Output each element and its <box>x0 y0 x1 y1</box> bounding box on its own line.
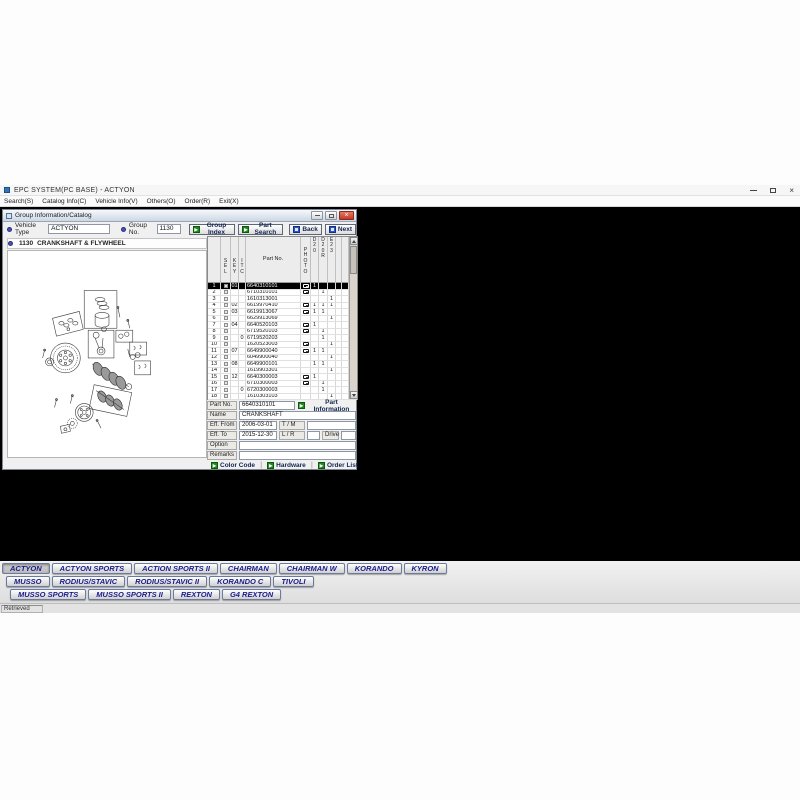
cell-sel <box>221 283 231 289</box>
photo-icon[interactable] <box>303 329 309 333</box>
cell-part: 1619903301 <box>246 368 301 374</box>
cell-photo <box>301 329 311 335</box>
photo-icon[interactable] <box>303 342 309 346</box>
cell-part: 6640300003 <box>246 374 301 380</box>
cell-sel <box>221 374 231 380</box>
menu-exit-x[interactable]: Exit(X) <box>219 198 239 205</box>
eff-to-label: Eff. To <box>207 431 237 440</box>
hardware-button[interactable]: ▶ Hardware <box>267 462 306 469</box>
cell-itc <box>239 283 246 289</box>
tm-value[interactable] <box>307 421 356 430</box>
cell-d20: 1 <box>311 309 319 315</box>
part-no-value[interactable]: 6640310101 <box>239 401 295 410</box>
cell-x2 <box>342 368 349 374</box>
cell-d20 <box>311 290 319 296</box>
cell-part: 6049900040 <box>246 355 301 361</box>
app-titlebar: EPC SYSTEM(PC BASE) - ACTYON <box>0 185 800 196</box>
table-scrollbar[interactable] <box>349 237 357 399</box>
photo-icon[interactable] <box>303 323 309 327</box>
cell-no: 5 <box>208 309 221 315</box>
cell-d20r <box>319 374 328 380</box>
cell-photo <box>301 374 311 380</box>
cell-key: 04 <box>231 322 239 328</box>
cell-key: 03 <box>231 309 239 315</box>
cell-no: 16 <box>208 381 221 387</box>
cell-d20r <box>319 283 328 289</box>
cell-sel <box>221 381 231 387</box>
cell-itc <box>239 309 246 315</box>
cell-no: 15 <box>208 374 221 380</box>
menu-vehicle-info-v[interactable]: Vehicle Info(V) <box>95 198 137 205</box>
cell-itc <box>239 348 246 354</box>
cell-no: 18 <box>208 394 221 400</box>
app-title: EPC SYSTEM(PC BASE) - ACTYON <box>14 187 135 194</box>
cell-d20 <box>311 329 319 335</box>
window-minimize-button[interactable] <box>311 211 323 220</box>
cell-d20: 1 <box>311 322 319 328</box>
cell-key: 07 <box>231 348 239 354</box>
cell-part: 6619970410 <box>246 303 301 309</box>
cell-itc <box>239 381 246 387</box>
eff-from-value[interactable]: 2006-03-01 <box>239 421 277 430</box>
cell-no: 9 <box>208 335 221 341</box>
vehicle-type-label: Vehicle Type <box>15 222 45 236</box>
green-arrow-icon: ▶ <box>298 402 305 409</box>
cell-key <box>231 296 239 302</box>
cell-photo <box>301 387 311 393</box>
photo-icon[interactable] <box>303 375 309 379</box>
model-button-action-sports-ii[interactable]: ACTION SPORTS II <box>134 563 218 574</box>
cell-e23 <box>328 309 336 315</box>
cell-itc: 0 <box>239 335 246 341</box>
catalog-window-titlebar[interactable]: Group Information/Catalog × <box>3 210 356 222</box>
parts-diagram-panel[interactable] <box>7 250 207 458</box>
parts-table: SELKEYITCPart No.PHOTOD20D20RE23 1016640… <box>207 236 358 400</box>
cell-photo <box>301 368 311 374</box>
vehicle-type-bullet-icon <box>7 227 12 232</box>
cell-x2 <box>342 309 349 315</box>
tm-label: T / M <box>279 421 305 430</box>
cell-d20 <box>311 335 319 341</box>
remarks-label: Remarks <box>207 451 237 460</box>
minimize-icon <box>315 215 320 216</box>
cell-e23: 1 <box>328 303 336 309</box>
cell-e23 <box>328 387 336 393</box>
cell-itc <box>239 316 246 322</box>
model-button-rexton[interactable]: REXTON <box>173 589 220 600</box>
cell-no: 17 <box>208 387 221 393</box>
model-button-rodius-stavic-ii[interactable]: RODIUS/STAVIC II <box>127 576 207 587</box>
cell-d20r: 1 <box>319 361 328 367</box>
drive-label: Drive <box>322 431 339 440</box>
cell-e23 <box>328 348 336 354</box>
cell-x2 <box>342 361 349 367</box>
photo-icon[interactable] <box>303 290 309 294</box>
cell-d20r: 1 <box>319 387 328 393</box>
menu-catalog-info-c[interactable]: Catalog Info(C) <box>42 198 86 205</box>
cell-key <box>231 316 239 322</box>
cell-no: 4 <box>208 303 221 309</box>
cell-photo <box>301 348 311 354</box>
cell-key <box>231 368 239 374</box>
cell-sel <box>221 303 231 309</box>
cell-d20r <box>319 342 328 348</box>
model-button-musso[interactable]: MUSSO <box>6 576 50 587</box>
cell-d20 <box>311 387 319 393</box>
model-button-musso-sports-ii[interactable]: MUSSO SPORTS II <box>88 589 171 600</box>
cell-e23 <box>328 283 336 289</box>
vehicle-type-field[interactable]: ACTYON <box>48 224 110 234</box>
cell-key <box>231 290 239 296</box>
menu-search-s[interactable]: Search(S) <box>4 198 33 205</box>
cell-no: 6 <box>208 316 221 322</box>
cell-sel <box>221 290 231 296</box>
cell-sel <box>221 361 231 367</box>
cell-d20: 1 <box>311 303 319 309</box>
row-select-icon[interactable] <box>224 349 228 353</box>
cell-part: 6649900040 <box>246 348 301 354</box>
row-select-icon[interactable] <box>224 303 228 307</box>
catalog-window-icon <box>6 213 12 219</box>
cell-photo <box>301 322 311 328</box>
photo-icon[interactable] <box>303 284 309 288</box>
cell-part: 1610303103 <box>246 394 301 400</box>
cell-key: 08 <box>231 361 239 367</box>
menu-order-r[interactable]: Order(R) <box>185 198 211 205</box>
cell-x2 <box>342 329 349 335</box>
cell-d20 <box>311 296 319 302</box>
model-button-korando-c[interactable]: KORANDO C <box>209 576 271 587</box>
section-bullet-icon <box>8 241 13 246</box>
option-value[interactable] <box>239 441 356 450</box>
cell-key <box>231 394 239 400</box>
cell-e23 <box>328 374 336 380</box>
model-button-rodius-stavic[interactable]: RODIUS/STAVIC <box>52 576 126 587</box>
color-code-label: Color Code <box>220 462 255 469</box>
cell-key <box>231 381 239 387</box>
section-header: 1130 CRANKSHAFT & FLYWHEEL <box>7 238 207 249</box>
maximize-icon <box>329 214 334 218</box>
cell-d20r <box>319 322 328 328</box>
cell-part: 6719520103 <box>246 329 301 335</box>
model-row-1: MUSSORODIUS/STAVICRODIUS/STAVIC IIKORAND… <box>6 576 314 587</box>
back-icon <box>293 226 300 233</box>
model-button-tivoli[interactable]: TIVOLI <box>273 576 313 587</box>
detail-buttons: ▶ Color Code | ▶ Hardware | ▶ Order List <box>211 460 358 470</box>
part-search-button[interactable]: ▶ Part Search <box>238 224 283 235</box>
photo-icon[interactable] <box>303 349 309 353</box>
cell-sel <box>221 355 231 361</box>
model-button-actyon[interactable]: ACTYON <box>2 563 50 574</box>
option-label: Option <box>207 441 237 450</box>
color-code-button[interactable]: ▶ Color Code <box>211 462 255 469</box>
model-row-0: ACTYONACTYON SPORTSACTION SPORTS IICHAIR… <box>2 563 447 574</box>
photo-icon[interactable] <box>303 303 309 307</box>
green-arrow-icon: ▶ <box>318 462 325 469</box>
back-label: Back <box>302 226 318 233</box>
cell-photo <box>301 361 311 367</box>
group-no-bullet-icon <box>121 227 126 232</box>
row-select-icon[interactable] <box>224 323 228 327</box>
model-band: ACTYONACTYON SPORTSACTION SPORTS IICHAIR… <box>0 561 800 603</box>
cell-sel <box>221 296 231 302</box>
row-select-icon[interactable] <box>224 310 228 314</box>
column-header-no <box>208 237 221 283</box>
cell-e23 <box>328 322 336 328</box>
cell-d20r: 1 <box>319 303 328 309</box>
group-no-field[interactable]: 1130 <box>157 224 181 234</box>
column-header-itc: ITC <box>239 237 246 283</box>
cell-itc <box>239 329 246 335</box>
column-header-d20r: D20R <box>319 237 328 283</box>
cell-d20r <box>319 355 328 361</box>
cell-photo <box>301 355 311 361</box>
row-select-icon[interactable] <box>224 375 228 379</box>
screen: EPC SYSTEM(PC BASE) - ACTYON × Search(S)… <box>0 0 800 800</box>
app-icon <box>4 187 10 193</box>
column-header-e23: E23 <box>328 237 336 283</box>
photo-icon[interactable] <box>303 310 309 314</box>
next-icon <box>329 226 336 233</box>
row-select-icon[interactable] <box>224 394 228 398</box>
menu-others-o[interactable]: Others(O) <box>147 198 176 205</box>
status-bar: Retrieved <box>0 603 800 613</box>
cell-sel <box>221 387 231 393</box>
cell-key <box>231 329 239 335</box>
model-button-chairman[interactable]: CHAIRMAN <box>220 563 277 574</box>
cell-d20: 1 <box>311 348 319 354</box>
cell-photo <box>301 290 311 296</box>
next-button[interactable]: Next <box>325 224 356 235</box>
order-list-label: Order List <box>327 462 358 469</box>
column-header-sel: SEL <box>221 237 231 283</box>
row-select-icon[interactable] <box>224 316 228 320</box>
cell-sel <box>221 322 231 328</box>
back-button[interactable]: Back <box>289 224 322 235</box>
model-button-g4-rexton[interactable]: G4 REXTON <box>222 589 281 600</box>
divider: | <box>260 462 262 469</box>
cell-e23: 1 <box>328 368 336 374</box>
cell-sel <box>221 309 231 315</box>
row-select-icon[interactable] <box>224 362 228 366</box>
cell-x2 <box>342 316 349 322</box>
cell-d20 <box>311 355 319 361</box>
cell-d20r: 1 <box>319 335 328 341</box>
row-select-icon[interactable] <box>224 336 228 340</box>
row-select-icon[interactable] <box>224 368 228 372</box>
green-arrow-icon: ▶ <box>267 462 274 469</box>
column-header-photo: PHOTO <box>301 237 311 283</box>
cell-x2 <box>342 335 349 341</box>
cell-sel <box>221 342 231 348</box>
cell-itc <box>239 296 246 302</box>
cell-x2 <box>342 348 349 354</box>
cell-d20r <box>319 316 328 322</box>
catalog-toolbar: Vehicle Type ACTYON Group No. 1130 ▶ Gro… <box>3 222 356 236</box>
cell-e23 <box>328 335 336 341</box>
group-index-label: Group Index <box>202 222 232 236</box>
cell-d20 <box>311 368 319 374</box>
name-value[interactable]: CRANKSHAFT <box>239 411 356 420</box>
group-no-label: Group No. <box>129 222 154 236</box>
name-label: Name <box>207 411 237 420</box>
cell-part: 6720300003 <box>246 387 301 393</box>
cell-photo <box>301 309 311 315</box>
cell-x2 <box>342 381 349 387</box>
cell-itc <box>239 394 246 400</box>
cell-itc <box>239 342 246 348</box>
cell-key: 12 <box>231 374 239 380</box>
cell-no: 3 <box>208 296 221 302</box>
cell-key: 02 <box>231 303 239 309</box>
lr-value[interactable] <box>307 431 320 440</box>
model-button-korando[interactable]: KORANDO <box>347 563 402 574</box>
cell-e23: 1 <box>328 316 336 322</box>
cell-e23 <box>328 381 336 387</box>
restore-icon[interactable] <box>770 188 776 193</box>
menu-bar: Search(S)Catalog Info(C)Vehicle Info(V)O… <box>0 196 800 207</box>
order-list-button[interactable]: ▶ Order List <box>318 462 358 469</box>
cell-x2 <box>342 387 349 393</box>
photo-icon[interactable] <box>303 381 309 385</box>
row-select-icon[interactable] <box>224 297 228 301</box>
cell-key <box>231 387 239 393</box>
column-header-d20: D20 <box>311 237 319 283</box>
cell-itc <box>239 355 246 361</box>
part-information-button[interactable]: ▶ Part Information <box>298 401 356 410</box>
cell-x2 <box>342 355 349 361</box>
cell-part: 1610313001 <box>246 296 301 302</box>
cell-e23 <box>328 290 336 296</box>
eff-to-value[interactable]: 2015-12-30 <box>239 431 277 440</box>
cell-photo <box>301 335 311 341</box>
model-button-actyon-sports[interactable]: ACTYON SPORTS <box>52 563 132 574</box>
drive-value[interactable] <box>341 431 356 440</box>
part-no-label: Part No. <box>207 401 237 410</box>
model-button-musso-sports[interactable]: MUSSO SPORTS <box>10 589 86 600</box>
cell-x2 <box>342 290 349 296</box>
cell-sel <box>221 329 231 335</box>
lr-label: L / R <box>279 431 305 440</box>
row-select-icon[interactable] <box>224 388 228 392</box>
eff-from-label: Eff. From <box>207 421 237 430</box>
cell-photo <box>301 381 311 387</box>
cell-d20r <box>319 368 328 374</box>
cell-no: 10 <box>208 342 221 348</box>
cell-part: 6710300003 <box>246 381 301 387</box>
cell-part: 6719520203 <box>246 335 301 341</box>
catalog-window: Group Information/Catalog × Vehicle Type… <box>2 209 357 470</box>
cell-no: 2 <box>208 290 221 296</box>
window-close-button[interactable]: × <box>339 211 354 220</box>
row-select-icon[interactable] <box>224 342 228 346</box>
cell-photo <box>301 342 311 348</box>
cell-no: 14 <box>208 368 221 374</box>
parts-table-body: 1016640310101126710310101131610313001140… <box>208 283 357 400</box>
cell-x2 <box>342 342 349 348</box>
cell-part: 6640310101 <box>246 283 301 289</box>
app-window-controls: × <box>750 185 794 196</box>
cell-d20 <box>311 381 319 387</box>
cell-key <box>231 335 239 341</box>
parts-table-header: SELKEYITCPart No.PHOTOD20D20RE23 <box>208 237 357 283</box>
cell-e23 <box>328 329 336 335</box>
cell-x2 <box>342 296 349 302</box>
scroll-up-icon[interactable] <box>350 237 358 245</box>
cell-x2 <box>342 303 349 309</box>
row-select-icon[interactable] <box>224 381 228 385</box>
hardware-label: Hardware <box>276 462 306 469</box>
cell-e23 <box>328 361 336 367</box>
cell-photo <box>301 283 311 289</box>
cell-no: 13 <box>208 361 221 367</box>
cell-d20 <box>311 316 319 322</box>
column-header-part: Part No. <box>246 237 301 283</box>
next-label: Next <box>338 226 352 233</box>
green-arrow-icon: ▶ <box>242 226 249 233</box>
remarks-value[interactable] <box>239 451 356 460</box>
parts-diagram-svg <box>8 251 206 457</box>
cell-sel <box>221 335 231 341</box>
cell-itc <box>239 374 246 380</box>
cell-part: 6649900101 <box>246 361 301 367</box>
cell-itc <box>239 368 246 374</box>
model-button-kyron[interactable]: KYRON <box>404 563 447 574</box>
cell-no: 11 <box>208 348 221 354</box>
cell-e23: 1 <box>328 342 336 348</box>
cell-x2 <box>342 283 349 289</box>
cell-part: 6640520103 <box>246 322 301 328</box>
divider: | <box>311 462 313 469</box>
cell-itc: 0 <box>239 387 246 393</box>
cell-sel <box>221 348 231 354</box>
cell-itc <box>239 303 246 309</box>
cell-no: 8 <box>208 329 221 335</box>
scrollbar-thumb[interactable] <box>350 246 357 274</box>
status-text: Retrieved <box>1 605 43 613</box>
row-select-icon[interactable] <box>224 329 228 333</box>
group-index-button[interactable]: ▶ Group Index <box>189 224 236 235</box>
section-title: CRANKSHAFT & FLYWHEEL <box>37 240 126 247</box>
cell-part: 6619913067 <box>246 309 301 315</box>
cell-key <box>231 342 239 348</box>
window-maximize-button[interactable] <box>325 211 337 220</box>
minimize-icon[interactable] <box>750 190 757 191</box>
cell-sel <box>221 368 231 374</box>
part-search-label: Part Search <box>251 222 279 236</box>
model-button-chairman-w[interactable]: CHAIRMAN W <box>279 563 345 574</box>
catalog-window-title: Group Information/Catalog <box>15 212 92 219</box>
close-icon[interactable]: × <box>789 187 794 195</box>
cell-d20: 1 <box>311 374 319 380</box>
cell-sel <box>221 394 231 400</box>
section-code: 1130 <box>19 240 33 247</box>
cell-part: 1620523003 <box>246 342 301 348</box>
cell-e23: 1 <box>328 296 336 302</box>
cell-itc <box>239 322 246 328</box>
row-select-icon[interactable] <box>224 290 228 294</box>
cell-photo <box>301 296 311 302</box>
model-row-2: MUSSO SPORTSMUSSO SPORTS IIREXTONG4 REXT… <box>10 589 281 600</box>
cell-d20r: 1 <box>319 348 328 354</box>
column-header-key: KEY <box>231 237 239 283</box>
row-select-icon[interactable] <box>224 355 228 359</box>
row-select-icon[interactable] <box>224 284 228 288</box>
cell-e23: 1 <box>328 355 336 361</box>
cell-x2 <box>342 322 349 328</box>
cell-key: 01 <box>231 283 239 289</box>
cell-d20r <box>319 296 328 302</box>
